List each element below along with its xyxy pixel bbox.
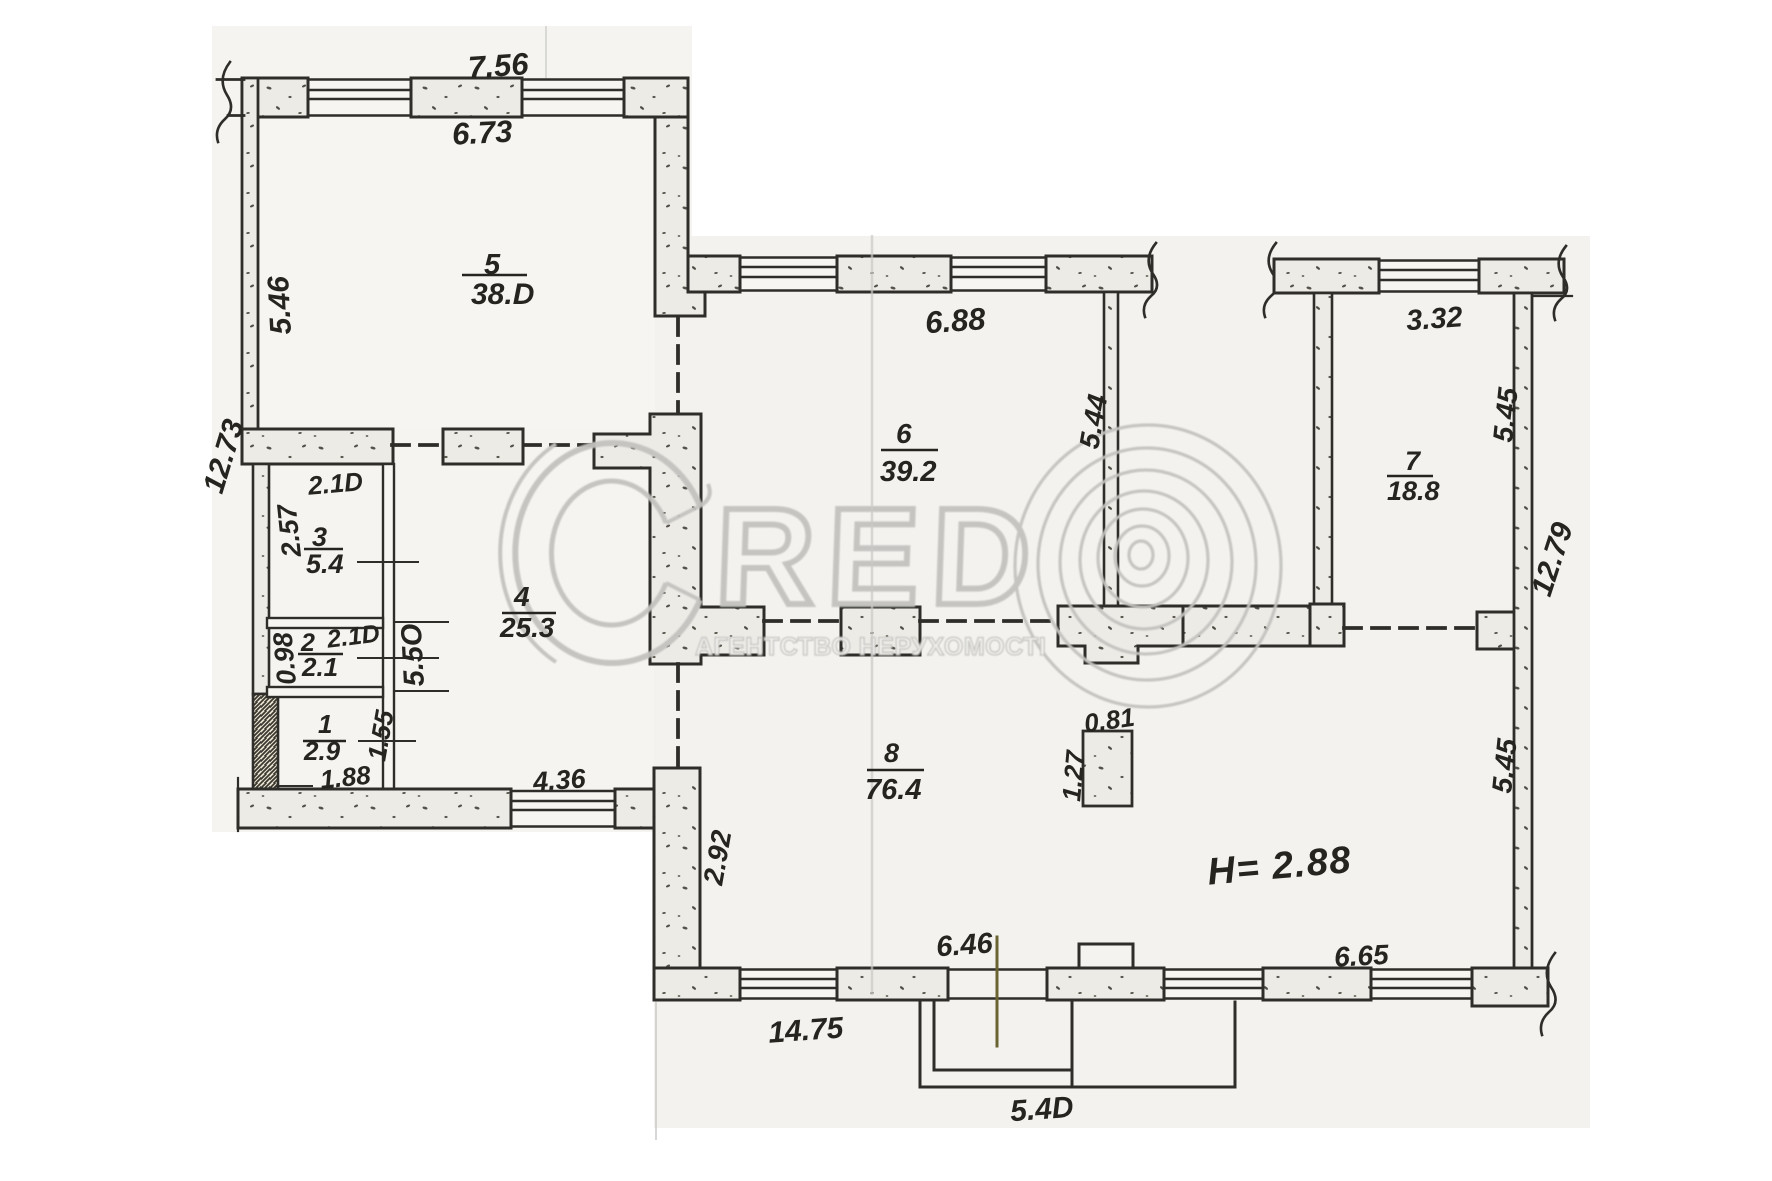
svg-text:8: 8 [884, 738, 899, 768]
svg-text:RED: RED [713, 480, 1046, 634]
svg-text:5.45: 5.45 [1486, 737, 1523, 795]
svg-text:2.57: 2.57 [271, 501, 307, 559]
svg-text:25.3: 25.3 [499, 612, 555, 643]
svg-text:14.75: 14.75 [767, 1011, 846, 1049]
svg-text:1.27: 1.27 [1056, 748, 1090, 803]
svg-text:7: 7 [1405, 446, 1422, 476]
svg-text:18.8: 18.8 [1387, 476, 1440, 506]
svg-text:2.1: 2.1 [301, 652, 338, 682]
svg-text:4.36: 4.36 [531, 763, 587, 797]
svg-text:0.98: 0.98 [268, 631, 302, 686]
svg-text:3.32: 3.32 [1405, 301, 1464, 337]
svg-text:1: 1 [318, 709, 332, 739]
svg-text:5.4D: 5.4D [1009, 1091, 1075, 1128]
svg-text:2.9: 2.9 [303, 736, 341, 766]
svg-text:5.4: 5.4 [306, 549, 344, 579]
svg-text:76.4: 76.4 [865, 774, 921, 806]
svg-text:АГЕНТСТВО НЕРУХОМОСТІ: АГЕНТСТВО НЕРУХОМОСТІ [695, 633, 1046, 661]
svg-text:2.1D: 2.1D [306, 466, 365, 501]
svg-text:6.65: 6.65 [1333, 939, 1389, 973]
svg-text:5.5O: 5.5O [396, 622, 431, 687]
svg-text:4: 4 [513, 581, 530, 612]
svg-text:39.2: 39.2 [880, 456, 936, 488]
svg-text:7.56: 7.56 [467, 46, 530, 85]
svg-text:38.D: 38.D [471, 278, 534, 311]
svg-text:6: 6 [896, 418, 912, 449]
svg-text:6.88: 6.88 [924, 301, 987, 340]
svg-text:1.88: 1.88 [319, 760, 373, 795]
svg-text:6.46: 6.46 [935, 927, 994, 963]
svg-text:5.46: 5.46 [262, 275, 298, 335]
svg-text:5.45: 5.45 [1487, 386, 1524, 444]
svg-text:3: 3 [312, 522, 327, 552]
svg-text:6.73: 6.73 [451, 114, 513, 152]
